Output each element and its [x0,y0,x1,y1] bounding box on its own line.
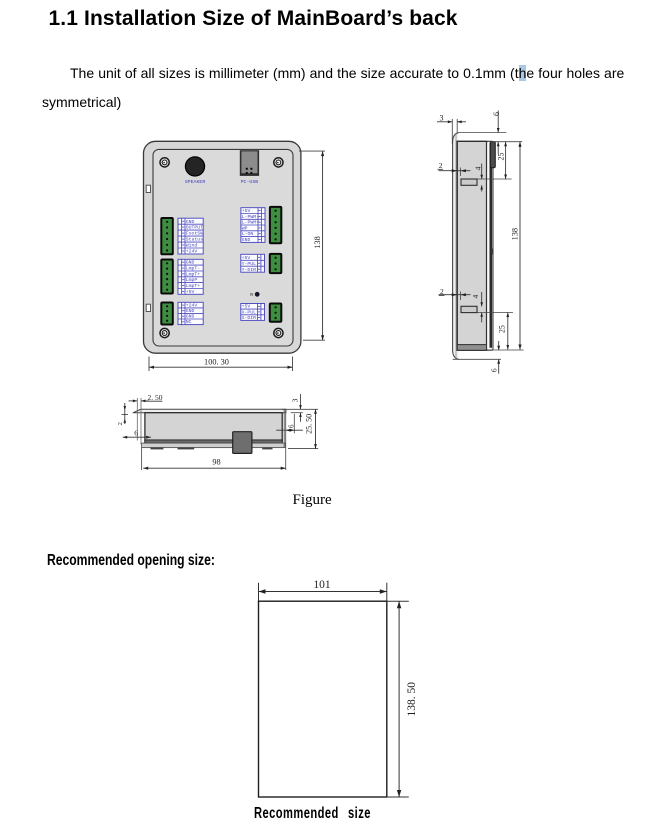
svg-text:+5V: +5V [242,304,251,310]
svg-text:138. 50: 138. 50 [406,682,418,717]
svg-text:GND: GND [242,237,251,243]
svg-text:WP: WP [242,225,248,231]
svg-text:L-ON: L-ON [242,231,254,237]
svg-text:Y-PUL: Y-PUL [242,261,257,267]
svg-text:2: 2 [439,161,443,170]
svg-text:6: 6 [134,428,138,437]
svg-text:3: 3 [290,398,299,402]
svg-text:LmpT+: LmpT+ [186,283,201,289]
svg-text:OUTPUT: OUTPUT [186,225,203,231]
svg-text:100. 30: 100. 30 [204,358,229,367]
svg-text:GND: GND [186,314,195,320]
svg-text:L-PWM-: L-PWM- [242,214,259,220]
svg-text:3: 3 [440,113,444,122]
svg-text:X-PUL: X-PUL [242,309,257,315]
svg-text:FootSW: FootSW [186,231,203,237]
svg-text:2: 2 [117,422,124,425]
svg-text:GND: GND [186,219,195,225]
svg-text:6: 6 [492,112,501,116]
svg-text:LmpT-: LmpT- [186,266,201,272]
svg-text:Wind: Wind [186,243,198,249]
svg-text:101: 101 [313,579,331,591]
svg-text:98: 98 [212,458,220,467]
svg-text:+24V: +24V [186,303,198,309]
svg-text:25. 50: 25. 50 [305,414,314,434]
svg-text:+5V: +5V [186,289,195,295]
svg-text:GND: GND [186,308,195,314]
svg-text:L-PWM+: L-PWM+ [242,220,259,226]
svg-text:4: 4 [473,166,482,170]
svg-text:+5V: +5V [242,208,251,214]
svg-text:138: 138 [511,228,520,240]
svg-text:138: 138 [313,236,322,248]
svg-text:Y-DIR: Y-DIR [242,267,257,273]
svg-text:LmpT+: LmpT+ [186,271,201,277]
svg-text:+5V: +5V [242,255,251,261]
svg-text:25: 25 [498,325,507,333]
svg-text:SPEAKER: SPEAKER [185,179,206,185]
svg-text:NC: NC [186,319,192,325]
svg-text:X-DIR: X-DIR [242,315,257,321]
svg-text:4: 4 [471,294,480,298]
svg-text:6: 6 [287,424,295,428]
svg-text:6: 6 [490,368,499,372]
svg-text:25: 25 [497,153,506,161]
svg-text:R: R [250,292,253,298]
svg-text:+24V: +24V [186,249,198,255]
svg-text:GND: GND [186,260,195,266]
svg-text:PC-USB: PC-USB [241,179,259,185]
svg-text:LmpP: LmpP [186,277,198,283]
svg-text:Status: Status [186,237,203,243]
